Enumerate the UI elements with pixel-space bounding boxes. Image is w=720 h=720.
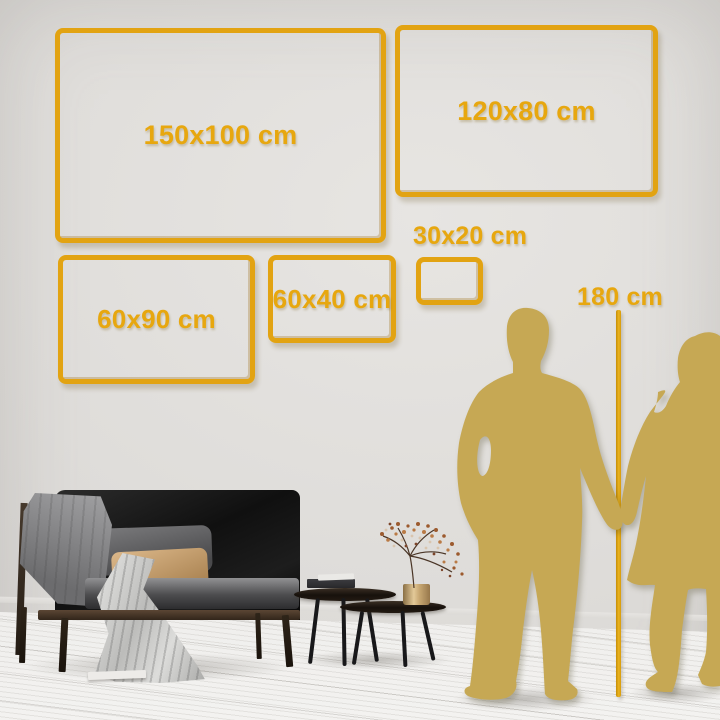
plant-branch-icon xyxy=(368,518,472,590)
table-leg xyxy=(401,611,408,667)
size-box-60x40: 60x40 cm xyxy=(268,255,396,343)
white-book xyxy=(318,573,354,580)
sofa-leg xyxy=(19,607,27,663)
size-box-120x80: 120x80 cm xyxy=(395,25,658,197)
man-silhouette-icon xyxy=(457,308,622,700)
size-label-150x100: 150x100 cm xyxy=(144,120,298,151)
coffee-table-top xyxy=(340,601,446,613)
size-comparison-scene: 150x100 cm 120x80 cm 60x90 cm 60x40 cm 3… xyxy=(0,0,720,720)
silhouettes-svg xyxy=(430,300,720,710)
woman-silhouette-icon xyxy=(620,332,720,692)
size-box-30x20 xyxy=(416,257,483,305)
book-stack xyxy=(307,579,355,588)
couple-silhouettes xyxy=(430,300,720,710)
sofa-leg xyxy=(59,618,69,672)
size-label-30x20: 30x20 cm xyxy=(413,222,527,251)
size-label-120x80: 120x80 cm xyxy=(457,96,595,127)
sofa-frame-rail xyxy=(38,610,300,620)
table-leg xyxy=(420,611,435,661)
table-leg xyxy=(308,598,320,664)
size-box-60x90: 60x90 cm xyxy=(58,255,255,384)
size-box-150x100: 150x100 cm xyxy=(55,28,386,243)
size-label-60x90: 60x90 cm xyxy=(97,304,216,335)
size-label-60x40: 60x40 cm xyxy=(273,284,392,315)
table-leg xyxy=(352,611,364,665)
sofa xyxy=(10,485,302,685)
plant-branch xyxy=(368,518,472,590)
